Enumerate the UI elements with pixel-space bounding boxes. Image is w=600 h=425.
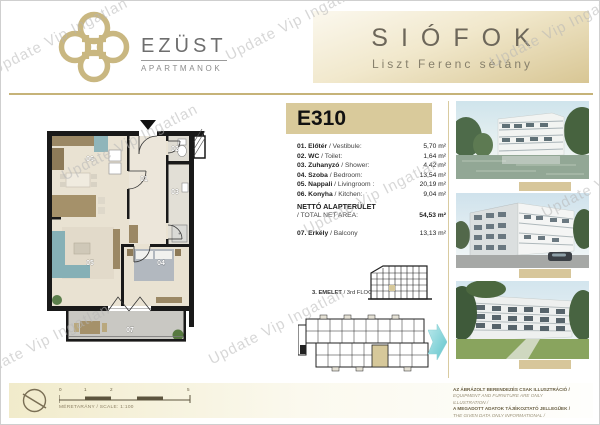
highlighted-unit [372, 345, 388, 367]
room-area: 5,70 m² [423, 142, 446, 152]
scale-tick: 0 [59, 387, 62, 392]
brand-subtitle: APARTMANOK [141, 64, 227, 73]
room-name: 04. Szoba [297, 172, 328, 179]
room-row: 06. Konyha / Kitchen: 9,04 m² [297, 190, 446, 200]
balcony-row: 07. Erkély / Balcony 13,13 m² [297, 229, 446, 239]
room-label-07: 07 [126, 327, 134, 334]
room-name-en: / Bedroom: [328, 172, 363, 179]
room-name: 06. Konyha [297, 191, 333, 198]
entry-arrow-icon [140, 120, 156, 130]
room-name-en: / Livingroom : [332, 181, 374, 188]
brand-title: EZÜST [141, 35, 227, 61]
building-cross-section [368, 262, 432, 304]
column-divider [448, 101, 449, 378]
disclaimer: AZ ÁBRÁZOLT BERENDEZÉS CSAK ILLUSZTRÁCIÓ… [453, 387, 571, 419]
room-label-04: 04 [157, 260, 165, 267]
room-area: 4,42 m² [423, 161, 446, 171]
room-row: 05. Nappali / Livingroom : 20,19 m² [297, 180, 446, 190]
room-name-en: / Toilet: [319, 153, 342, 160]
room-name: 01. Előtér [297, 143, 327, 150]
north-arrow-icon [21, 387, 48, 414]
total-label-en: / TOTAL NET AREA: [297, 211, 358, 221]
balcony-label: 07. Erkély [297, 230, 328, 237]
total-label: NETTÓ ALAPTERÜLET [297, 202, 446, 211]
location-title: SIÓFOK [358, 24, 543, 53]
room-row: 03. Zuhanyzó / Shower: 4,42 m² [297, 161, 446, 171]
scale-label: MÉRETARÁNY / SCALE: 1:100 [59, 405, 134, 410]
unit-id-header: E310 [286, 103, 432, 134]
brand-block: EZÜST APARTMANOK [141, 35, 227, 73]
room-area: 13,54 m² [420, 171, 446, 181]
photo-caption-bar [519, 360, 571, 369]
room-row: 02. WC / Toilet: 1,64 m² [297, 152, 446, 162]
room-name: 02. WC [297, 153, 319, 160]
building-photo-corner [456, 193, 589, 268]
floor-overview-plan [298, 307, 440, 375]
room-label-03: 03 [171, 189, 179, 196]
scale-bar [59, 394, 194, 404]
room-area: 20,19 m² [420, 180, 446, 190]
building-photo-garden [456, 281, 589, 359]
location-banner: SIÓFOK Liszt Ferenc sétány [313, 11, 589, 83]
room-area: 9,04 m² [423, 190, 446, 200]
room-row: 04. Szoba / Bedroom: 13,54 m² [297, 171, 446, 181]
room-name: 03. Zuhanyzó [297, 162, 339, 169]
room-name-en: / Vestibule: [327, 143, 362, 150]
total-area-block: NETTÓ ALAPTERÜLET / TOTAL NET AREA: 54,5… [297, 202, 446, 221]
disclaimer-line: A MEGADOTT ADATOK TÁJÉKOZTATÓ JELLEGŰEK … [453, 406, 571, 412]
room-label-05: 05 [86, 260, 94, 267]
room-row: 01. Előtér / Vestibule: 5,70 m² [297, 142, 446, 152]
direction-arrow-icon [428, 324, 447, 360]
scale-tick: 5 [187, 387, 190, 392]
scale-tick: 2 [110, 387, 113, 392]
total-area-value: 54,53 m² [419, 211, 446, 221]
room-area: 1,64 m² [423, 152, 446, 162]
disclaimer-line: EQUIPMENT AND FURNITURE ARE ONLY ILLUSTR… [453, 393, 571, 406]
disclaimer-line: THE GIVEN DATA ONLY INFORMATIONAL / [453, 413, 571, 419]
photo-caption-bar [519, 269, 571, 278]
building-photo-waterfront [456, 101, 589, 179]
header-divider [9, 93, 593, 95]
room-label-01: 01 [140, 176, 148, 183]
room-name-en: / Shower: [339, 162, 369, 169]
brand-knot-logo-icon [58, 11, 130, 83]
scale-tick: 1 [84, 387, 87, 392]
room-label-06: 06 [86, 156, 94, 163]
floor-plan: 06 01 02 03 05 04 07 [36, 111, 258, 377]
room-label-02: 02 [171, 146, 179, 153]
balcony-label-en: / Balcony [328, 230, 357, 237]
room-name-en: / Kitchen: [333, 191, 363, 198]
brochure-page: Update Vip Ingatlan Update Vip Ingatlan … [0, 0, 600, 425]
balcony-area: 13,13 m² [420, 229, 446, 239]
location-subtitle: Liszt Ferenc sétány [369, 57, 533, 71]
photo-caption-bar [519, 182, 571, 191]
floor-level-hu: 3. EMELET [312, 290, 342, 296]
room-list: 01. Előtér / Vestibule: 5,70 m² 02. WC /… [297, 142, 446, 200]
room-name: 05. Nappali [297, 181, 332, 188]
